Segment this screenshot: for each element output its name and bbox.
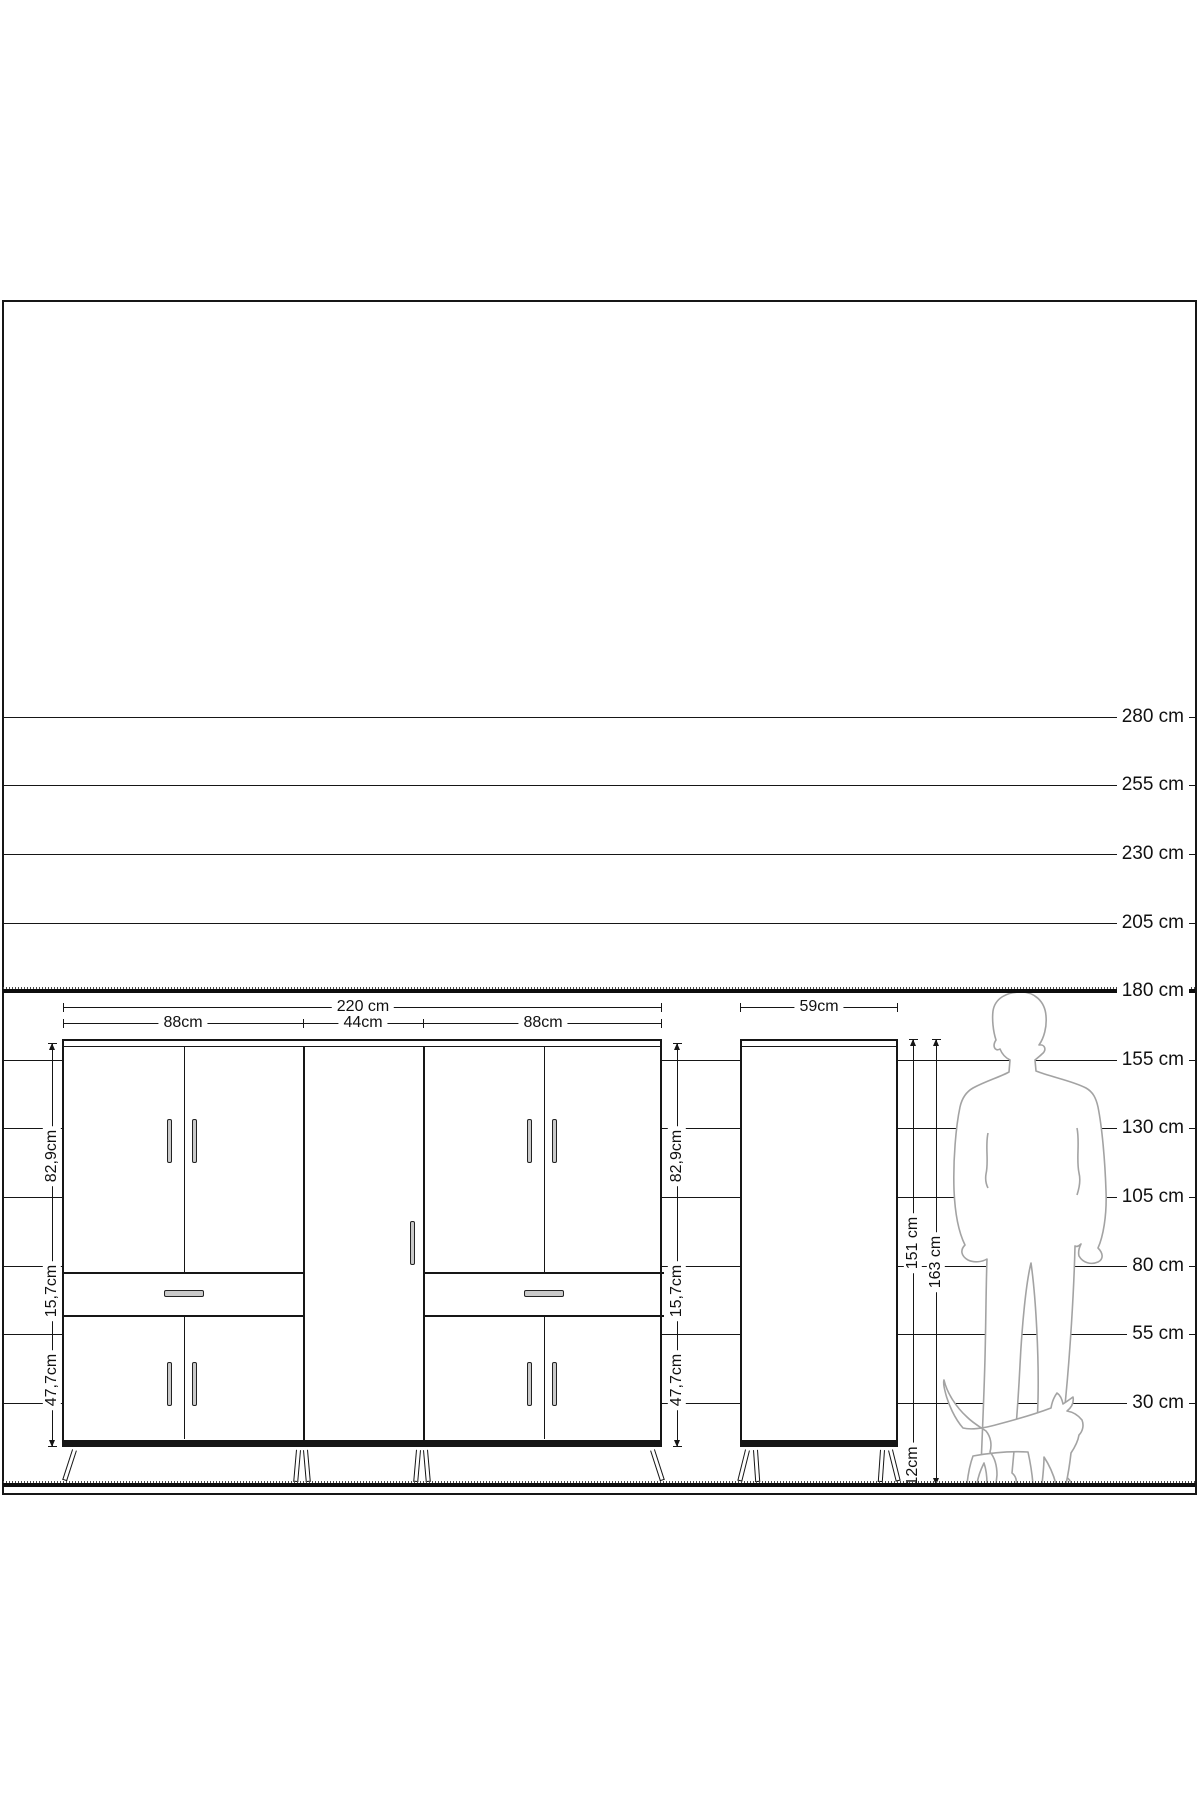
cabinet-leg <box>650 1449 665 1481</box>
ground-line <box>3 1483 1195 1487</box>
side-cabinet-leg <box>737 1449 750 1481</box>
right-door-split-bottom <box>544 1315 545 1439</box>
left-drawer-handle <box>164 1290 204 1297</box>
side-cabinet-leg <box>753 1450 760 1482</box>
dim-side-width: 59cm <box>740 1007 898 1008</box>
lower-left-door-handle-1 <box>167 1362 172 1406</box>
dim-label-82-9-mid: 82,9cm <box>668 1126 686 1186</box>
right-drawer-top-line <box>424 1272 664 1274</box>
cat-silhouette-icon <box>935 1370 1095 1490</box>
upper-right-door-handle-1 <box>527 1119 532 1163</box>
dim-heights-left: 82,9cm 15,7cm 47,7cm <box>52 1043 53 1447</box>
ruler-line-180-bold: 180 cm <box>3 989 1195 993</box>
left-drawer-top-line <box>64 1272 304 1274</box>
furniture-dimension-diagram: 280 cm 255 cm 230 cm 205 cm 180 cm 155 c… <box>0 0 1200 1800</box>
ruler-label-280: 280 cm <box>1117 706 1189 728</box>
dim-label-151: 151 cm <box>904 1213 922 1273</box>
ruler-line-280: 280 cm <box>3 717 1195 718</box>
ruler-label-230: 230 cm <box>1117 843 1189 865</box>
dim-heights-middle: 82,9cm 15,7cm 47,7cm <box>677 1043 678 1447</box>
side-cabinet-leg <box>878 1450 885 1482</box>
cabinet-leg <box>413 1450 421 1482</box>
ruler-label-155: 155 cm <box>1117 1049 1189 1071</box>
dim-carcass-and-leg-height: 151 cm 12cm <box>913 1039 914 1485</box>
ruler-label-30: 30 cm <box>1127 1392 1189 1414</box>
dim-label-15-7: 15,7cm <box>43 1261 61 1321</box>
ruler-label-205: 205 cm <box>1117 912 1189 934</box>
upper-left-door-handle-1 <box>167 1119 172 1163</box>
right-drawer-handle <box>524 1290 564 1297</box>
upper-right-door-handle-2 <box>552 1119 557 1163</box>
dim-label-47-7-mid: 47,7cm <box>668 1350 686 1410</box>
left-drawer-bottom-line <box>64 1315 304 1317</box>
ruler-label-130: 130 cm <box>1117 1117 1189 1139</box>
side-top-edge <box>742 1046 896 1047</box>
lower-right-door-handle-1 <box>527 1362 532 1406</box>
ruler-label-255: 255 cm <box>1117 774 1189 796</box>
divider-center-right <box>423 1047 425 1440</box>
dim-label-88-right: 88cm <box>518 1014 567 1032</box>
ruler-line-205: 205 cm <box>3 923 1195 924</box>
lower-right-door-handle-2 <box>552 1362 557 1406</box>
upper-left-door-handle-2 <box>192 1119 197 1163</box>
cabinet-side-view <box>740 1039 898 1447</box>
ruler-label-80: 80 cm <box>1127 1255 1189 1277</box>
cabinet-leg <box>62 1449 77 1481</box>
side-bottom-band <box>742 1440 896 1445</box>
ruler-label-55: 55 cm <box>1127 1323 1189 1345</box>
cabinet-bottom-band <box>64 1440 660 1445</box>
right-door-split-top <box>544 1047 545 1272</box>
cabinet-leg <box>423 1450 431 1482</box>
divider-left-center <box>303 1047 305 1440</box>
dim-label-88-left: 88cm <box>158 1014 207 1032</box>
cabinet-front-view <box>62 1039 662 1447</box>
right-drawer-bottom-line <box>424 1315 664 1317</box>
ruler-label-180: 180 cm <box>1117 980 1189 1002</box>
cabinet-leg <box>303 1450 311 1482</box>
dim-label-82-9: 82,9cm <box>43 1126 61 1186</box>
ruler-line-255: 255 cm <box>3 785 1195 786</box>
side-cabinet-leg <box>888 1449 901 1481</box>
center-door-handle <box>410 1221 415 1265</box>
dim-label-44: 44cm <box>338 1014 387 1032</box>
left-door-split-top <box>184 1047 185 1272</box>
dim-total-width: 220 cm <box>63 1007 662 1008</box>
ruler-line-230: 230 cm <box>3 854 1195 855</box>
cabinet-top-edge <box>64 1046 660 1047</box>
dim-label-59: 59cm <box>794 998 843 1016</box>
ruler-label-105: 105 cm <box>1117 1186 1189 1208</box>
lower-left-door-handle-2 <box>192 1362 197 1406</box>
dim-label-47-7: 47,7cm <box>43 1350 61 1410</box>
dim-label-15-7-mid: 15,7cm <box>668 1261 686 1321</box>
left-door-split-bottom <box>184 1315 185 1439</box>
dim-section-widths: 88cm 44cm 88cm <box>63 1023 662 1024</box>
cabinet-leg <box>293 1450 301 1482</box>
